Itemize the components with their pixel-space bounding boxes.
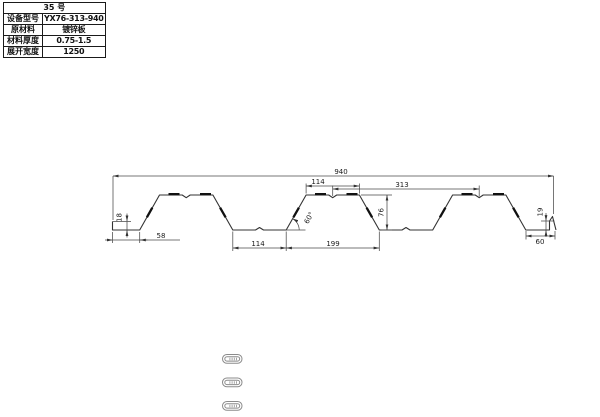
stiffener-detail-icon [223,378,243,387]
profile-outline [113,195,557,230]
dim-left-lip: 18 [116,213,124,222]
stiffener-detail-icon [223,355,243,364]
dim-total-width: 940 [334,168,347,176]
dim-rib-base: 199 [326,240,339,248]
angle-arc [293,219,300,230]
dim-top-flange: 114 [311,178,325,186]
dim-right-lip: 19 [537,208,545,217]
dim-web-angle: 60° [303,211,316,226]
dim-right-flat: 60 [536,238,545,246]
drawing-sheet: 35 号 设备型号 YX76-313-940 原材料 镀锌板 材料厚度 0.75… [0,0,600,417]
dim-valley: 114 [251,240,265,248]
profile-drawing: 940 114 313 114 199 58 60 76 18 19 60° [0,0,600,417]
dim-left-flat: 58 [157,232,166,240]
dim-pitch: 313 [395,181,408,189]
stiffener-detail-icon [223,402,243,411]
dim-rib-height: 76 [378,208,386,217]
